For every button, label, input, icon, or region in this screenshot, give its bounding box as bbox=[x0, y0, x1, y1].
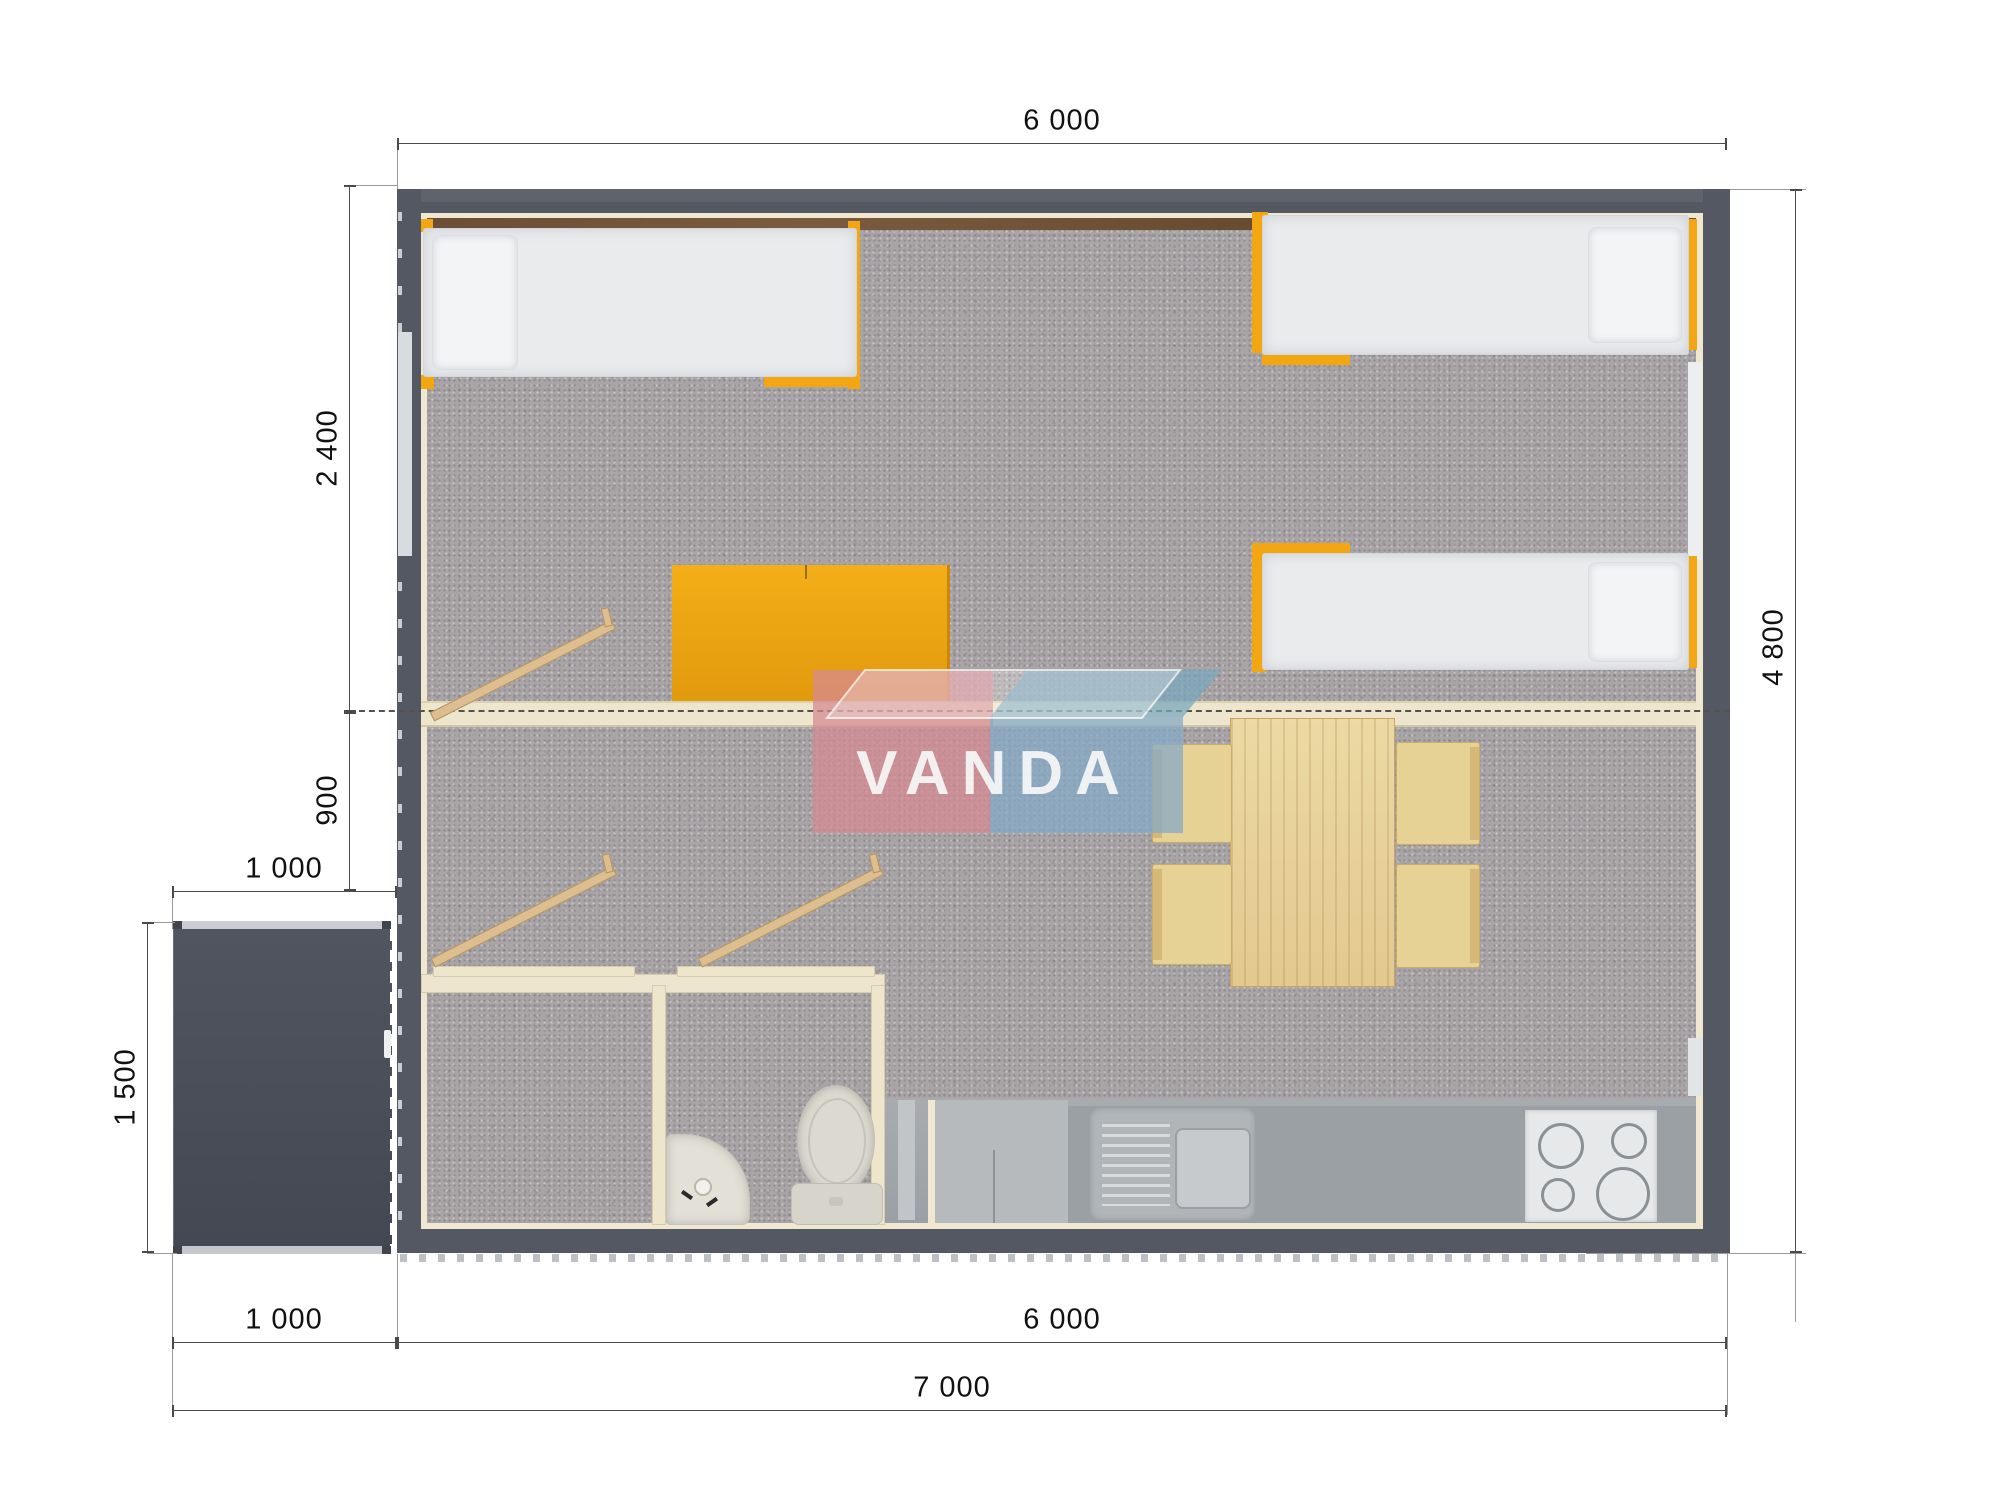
floor-plan-canvas: VANDA 6 000 2 400 900 1 000 1 500 4 800 … bbox=[0, 0, 2000, 1502]
dim-line-bottom-house bbox=[397, 1342, 1727, 1343]
dim-label-porch-width-top: 1 000 bbox=[245, 853, 323, 886]
bathroom-front-wall-pad bbox=[433, 966, 635, 977]
bed-top-right bbox=[1252, 212, 1697, 366]
window-right-wall-lower bbox=[1688, 1038, 1702, 1096]
vanda-logo-icon: VANDA bbox=[808, 663, 1228, 838]
stove-burner-icon bbox=[1541, 1178, 1575, 1212]
toilet-button-icon bbox=[829, 1197, 843, 1206]
bed-frame bbox=[1252, 543, 1262, 672]
logo-ghost-face bbox=[827, 670, 1180, 718]
stove-burner-icon bbox=[1538, 1123, 1584, 1169]
porch-deck bbox=[173, 929, 392, 1246]
kitchen-divider bbox=[928, 1100, 935, 1223]
bed-frame bbox=[1688, 219, 1697, 350]
dining-table bbox=[1230, 718, 1395, 987]
kitchen-cabinet-seam bbox=[993, 1150, 995, 1223]
porch-step-bottom bbox=[173, 1246, 391, 1254]
window-right-wall bbox=[1688, 362, 1702, 560]
chair bbox=[1396, 742, 1480, 845]
dim-line-porch-width-top bbox=[172, 891, 397, 892]
pillow bbox=[1588, 562, 1682, 662]
dim-label-bottom-porch: 1 000 bbox=[245, 1304, 323, 1337]
door-handle-icon bbox=[384, 1030, 391, 1058]
dim-label-top-width: 6 000 bbox=[1023, 105, 1101, 138]
bed-frame bbox=[421, 375, 434, 389]
pillow bbox=[1588, 227, 1682, 343]
right-wall bbox=[1703, 189, 1730, 1253]
kitchen-end-panel bbox=[898, 1100, 915, 1220]
liner-bottom bbox=[421, 1223, 1703, 1229]
bed-top-left bbox=[421, 218, 862, 390]
dim-line-side-height bbox=[1795, 189, 1796, 1253]
bed-middle-right bbox=[1252, 543, 1697, 672]
dim-label-bedroom-depth: 2 400 bbox=[312, 409, 345, 487]
toilet-seat bbox=[808, 1098, 866, 1184]
extension-line bbox=[349, 185, 397, 186]
extension-line bbox=[1586, 1253, 1806, 1254]
dim-line-bedroom-depth bbox=[349, 185, 350, 712]
bathroom-middle-wall bbox=[652, 985, 666, 1225]
chair bbox=[1396, 864, 1480, 968]
top-wall-roof-edge bbox=[397, 189, 1730, 203]
dim-label-side-height: 4 800 bbox=[1758, 608, 1791, 686]
dim-line-porch-depth bbox=[147, 922, 148, 1253]
dim-label-bottom-total: 7 000 bbox=[913, 1372, 991, 1405]
porch-step-bottom-cap bbox=[382, 1246, 391, 1254]
wardrobe-door-seam bbox=[805, 565, 807, 579]
pillow bbox=[432, 235, 518, 370]
kitchen-drainboard bbox=[1102, 1124, 1170, 1206]
dim-label-porch-depth: 1 500 bbox=[110, 1048, 143, 1126]
logo-text: VANDA bbox=[856, 739, 1132, 808]
dim-label-hall-depth: 900 bbox=[312, 774, 345, 825]
dim-line-bottom-porch bbox=[172, 1342, 397, 1343]
bottom-wall bbox=[397, 1229, 1730, 1253]
dim-line-hall-depth bbox=[349, 712, 350, 891]
bathroom-front-wall-pad bbox=[677, 966, 875, 977]
deck-edge-ticks bbox=[400, 1254, 1727, 1262]
vanda-watermark: VANDA bbox=[808, 663, 1228, 838]
entrance-door-dashed bbox=[390, 929, 394, 1246]
porch-step-top-cap bbox=[382, 921, 391, 929]
window-left-wall bbox=[398, 332, 412, 556]
dim-line-bottom-total bbox=[172, 1410, 1727, 1411]
extension-line bbox=[1727, 1253, 1728, 1415]
extension-line bbox=[397, 1254, 398, 1347]
extension-line bbox=[172, 1254, 173, 1415]
bed-frame bbox=[1252, 215, 1262, 353]
dim-line-top-width bbox=[397, 143, 1727, 144]
stove-burner-icon bbox=[1596, 1167, 1650, 1221]
bathroom-faucet-icon bbox=[694, 1178, 712, 1196]
extension-line bbox=[1795, 1253, 1796, 1322]
kitchen-sink-basin bbox=[1175, 1128, 1251, 1209]
stove-burner-icon bbox=[1611, 1123, 1647, 1159]
chair bbox=[1152, 864, 1232, 965]
bed-frame bbox=[1688, 556, 1697, 668]
porch-step-top bbox=[173, 921, 391, 929]
kitchen-cabinet bbox=[935, 1100, 1068, 1223]
dim-label-bottom-house: 6 000 bbox=[1023, 1304, 1101, 1337]
